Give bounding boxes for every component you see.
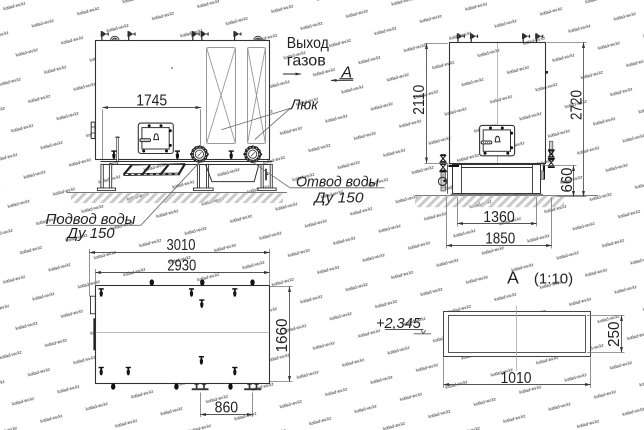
svg-text:Выход: Выход [287,35,330,52]
svg-text:660: 660 [559,167,576,192]
svg-text:250: 250 [606,321,623,347]
svg-text:1745: 1745 [136,92,167,109]
svg-text:газов: газов [287,53,326,70]
svg-text:2110: 2110 [411,84,428,114]
svg-text:1850: 1850 [485,231,515,248]
svg-text:1010: 1010 [501,370,532,387]
svg-text:А: А [507,268,519,288]
svg-text:(1:10): (1:10) [534,271,573,288]
svg-text:2720: 2720 [568,90,585,120]
svg-text:860: 860 [215,400,239,417]
svg-text:Отвод воды: Отвод воды [296,174,379,190]
svg-text:3010: 3010 [167,237,196,254]
svg-text:2930: 2930 [167,257,196,274]
svg-text:Люк: Люк [289,98,319,114]
svg-text:Ду 150: Ду 150 [65,226,114,242]
svg-text:Ду 150: Ду 150 [312,190,363,206]
svg-text:1360: 1360 [483,209,515,226]
svg-text:1660: 1660 [274,318,291,352]
